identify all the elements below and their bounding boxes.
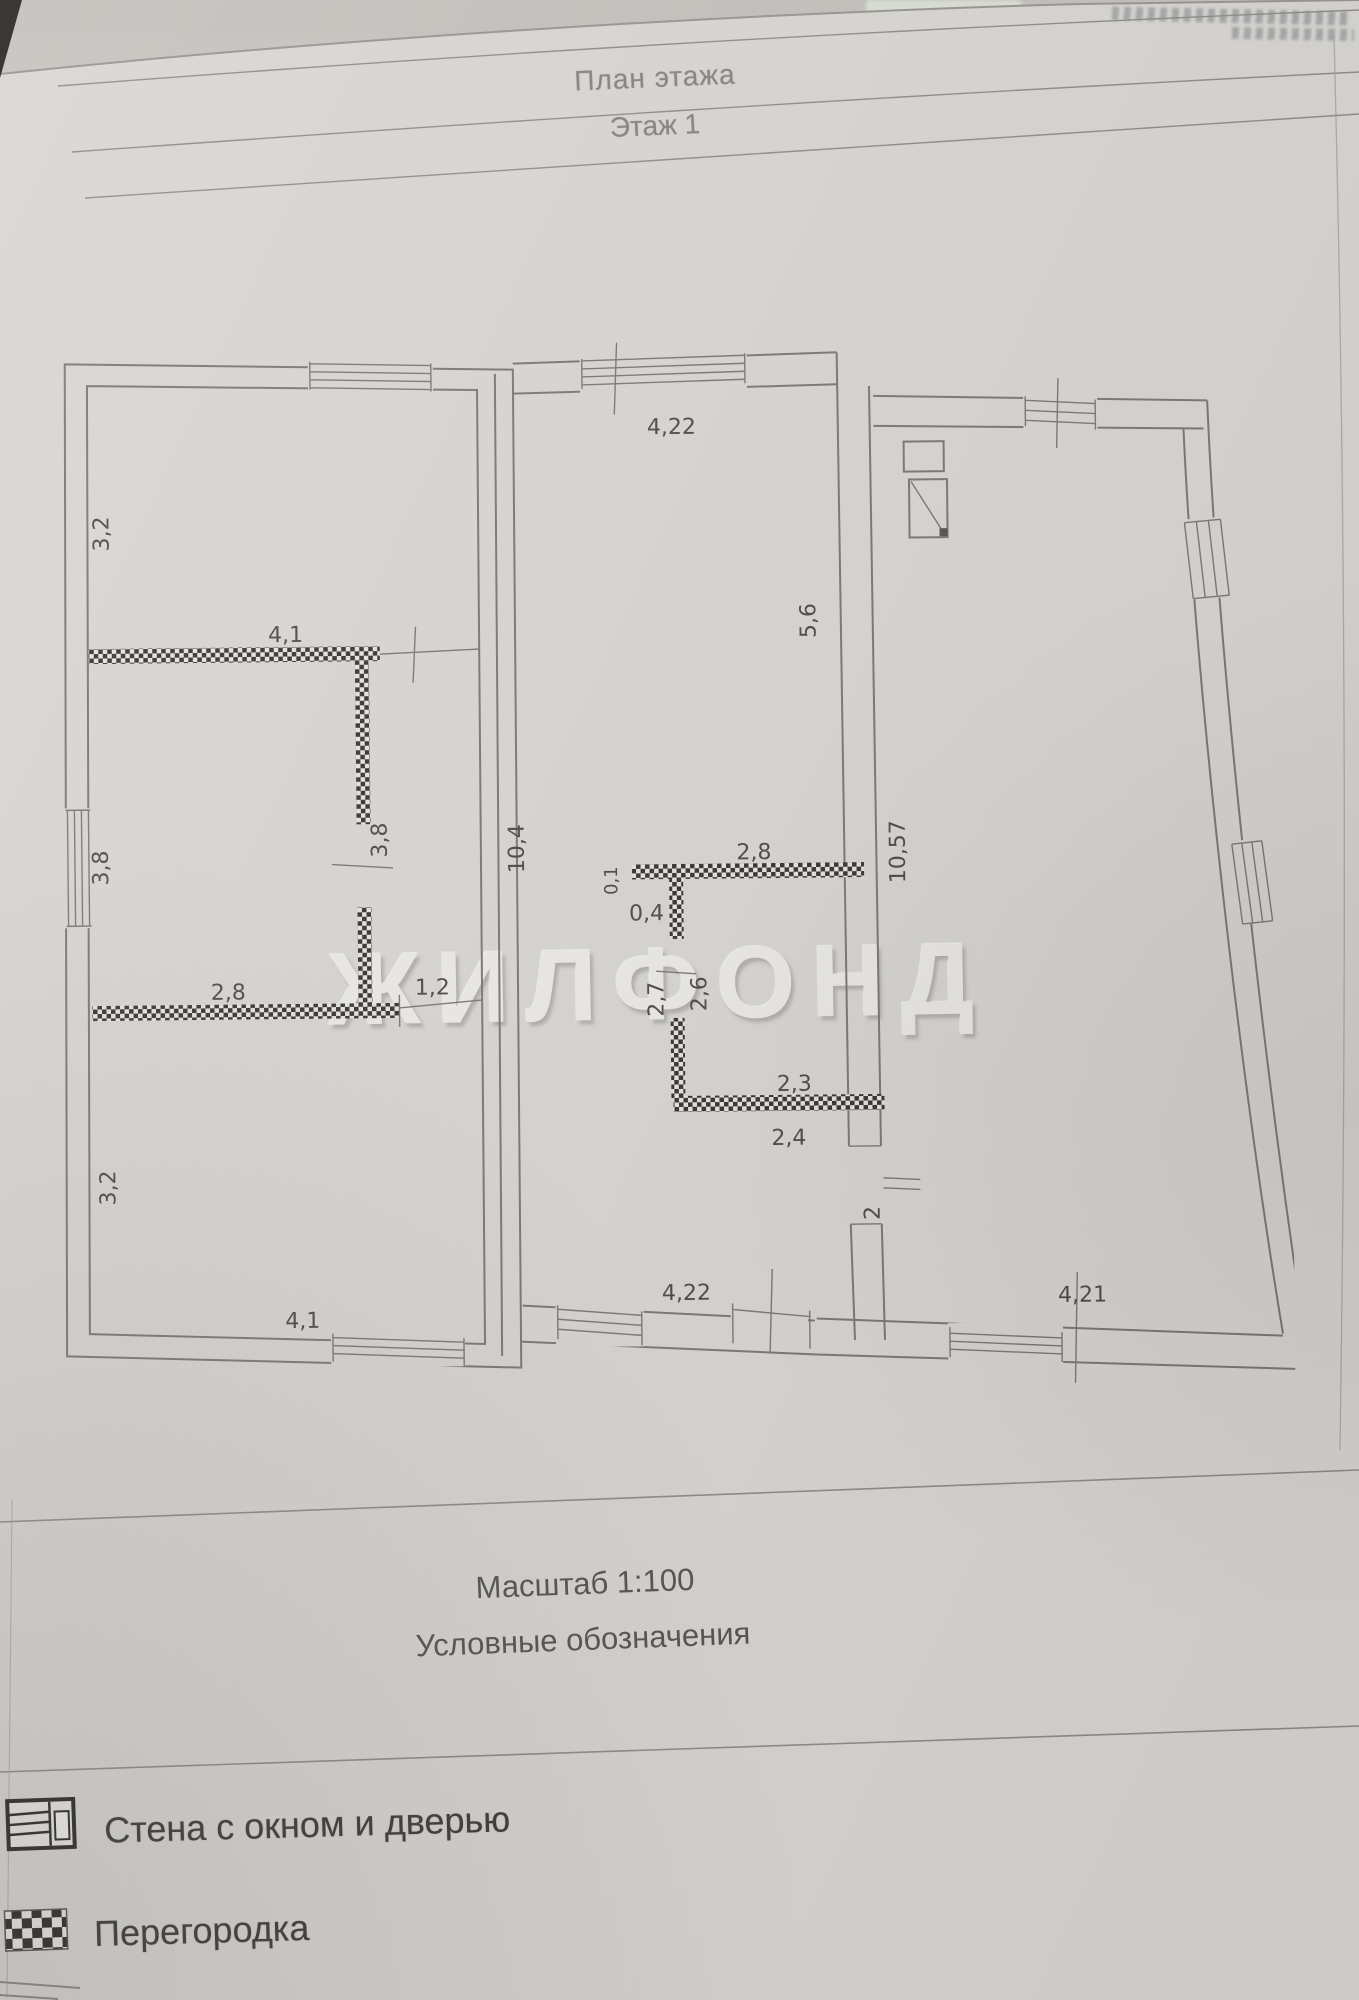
partition-lower-horizontal	[92, 1003, 399, 1021]
dim-label: 2,4	[771, 1126, 806, 1151]
partition-vertical-upper	[355, 661, 371, 824]
dim-label: 10,4	[505, 824, 531, 873]
wall-window-door-icon	[3, 1791, 81, 1860]
partition-vertical-lower	[357, 907, 372, 1006]
stove-upper-box	[904, 441, 944, 471]
door-tick	[656, 971, 696, 974]
dim-label: 2	[861, 1206, 886, 1220]
footer-rule-top	[0, 1470, 1359, 1522]
page-corner-shadow	[0, 0, 22, 78]
dim-label: 2,8	[736, 840, 771, 865]
door-ticks	[883, 1177, 920, 1189]
page-right-border	[1334, 36, 1344, 1450]
partition-upper-horizontal	[89, 646, 380, 664]
dim-label: 4,1	[268, 623, 303, 648]
legend-item-label: Стена с окном и дверью	[103, 1786, 510, 1851]
stove-symbol	[904, 441, 948, 537]
partition-walls	[89, 621, 921, 1198]
dimension-labels: 3,2 4,1 3,8 3,8 2,8 1,2 3,2 4,1 4,22 10,…	[84, 411, 1107, 1337]
dim-label: 2,3	[777, 1072, 812, 1097]
dim-label: 4,22	[662, 1281, 711, 1307]
shared-wall-mid-line	[492, 374, 505, 1356]
left-section-inner-wall	[80, 382, 487, 1348]
dim-label: 3,2	[96, 1170, 121, 1205]
footer-rule-bottom	[0, 1726, 1359, 1772]
dim-label: 2,6	[687, 976, 712, 1011]
bathroom-left-partition-upper	[669, 879, 684, 939]
door-tick	[332, 864, 393, 869]
left-section-outer-wall	[57, 360, 524, 1373]
stove-diagonal	[911, 481, 945, 534]
bottom-edge-marks	[0, 1982, 80, 1999]
floor-plan-drawing: 3,2 4,1 3,8 3,8 2,8 1,2 3,2 4,1 4,22 10,…	[55, 336, 1296, 1394]
dim-label: 0,4	[629, 901, 664, 926]
dim-label: 5,6	[796, 603, 821, 638]
dim-label: 10,57	[886, 820, 912, 883]
legend-item-partition: Перегородка	[2, 1898, 309, 1956]
dim-label: 3,8	[368, 822, 393, 857]
partition-icon	[1, 1897, 71, 1957]
dim-label: 2,7	[644, 982, 669, 1017]
dim-label: 3,8	[89, 850, 114, 885]
dim-label: 4,21	[1058, 1283, 1107, 1309]
dim-label: 4,22	[647, 415, 696, 441]
legend-item-wall-window-door: Стена с окном и дверью	[4, 1792, 510, 1858]
bathroom-left-partition-lower	[671, 1018, 686, 1098]
dim-label: 2,8	[211, 981, 246, 1006]
dimension-tick	[412, 627, 416, 683]
legend-item-label: Перегородка	[93, 1895, 310, 1955]
stove-corner-mark	[939, 528, 947, 536]
dim-label: 1,2	[415, 975, 450, 1000]
door-line	[380, 649, 479, 654]
middle-right-wall-left-line	[837, 352, 855, 1340]
dim-label: 3,2	[89, 516, 114, 551]
dim-label: 0,1	[601, 866, 622, 895]
middle-right-wall-right-line	[869, 386, 885, 1340]
dim-label: 4,1	[285, 1309, 320, 1334]
